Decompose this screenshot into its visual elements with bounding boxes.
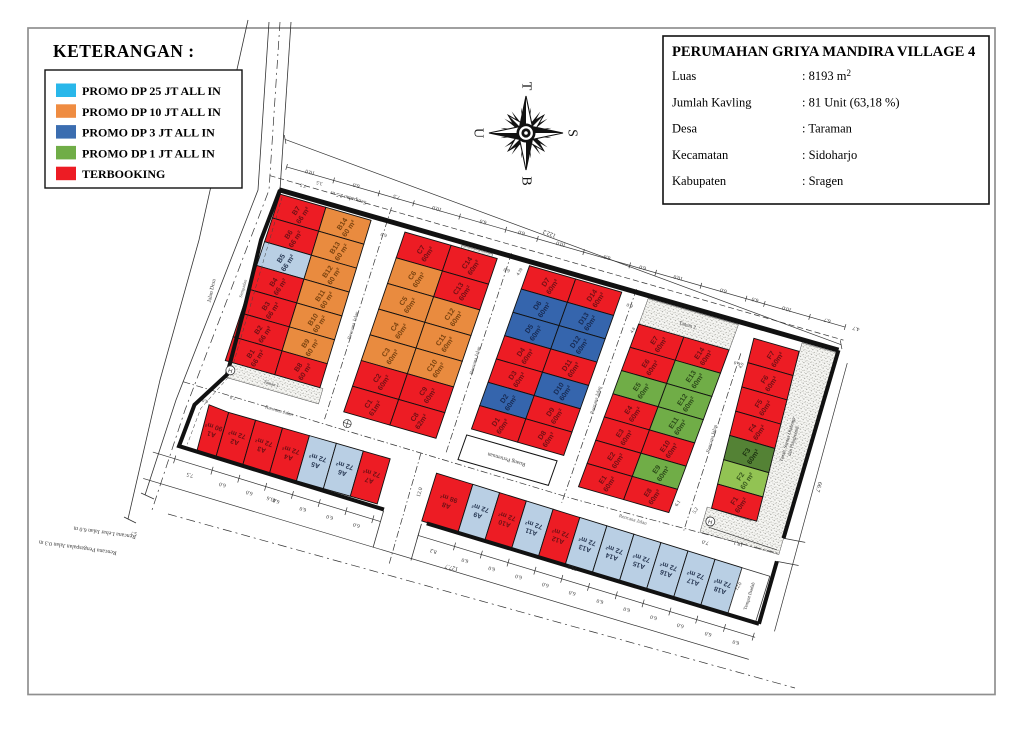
svg-text:Kabupaten: Kabupaten: [672, 174, 727, 188]
svg-text:Luas: Luas: [672, 69, 696, 83]
svg-text:S: S: [565, 129, 580, 137]
svg-text:Jumlah Kavling: Jumlah Kavling: [672, 95, 752, 109]
svg-text:5.7: 5.7: [130, 530, 137, 536]
svg-text:: 81 Unit (63,18 %): : 81 Unit (63,18 %): [802, 95, 900, 109]
svg-text:PROMO DP 3 JT ALL IN: PROMO DP 3 JT ALL IN: [82, 126, 215, 140]
svg-text:KETERANGAN :: KETERANGAN :: [53, 41, 195, 61]
svg-text:PROMO DP 25 JT ALL IN: PROMO DP 25 JT ALL IN: [82, 84, 221, 98]
svg-text:PROMO DP 1 JT ALL IN: PROMO DP 1 JT ALL IN: [82, 146, 215, 160]
svg-text:PERUMAHAN GRIYA MANDIRA VILLAG: PERUMAHAN GRIYA MANDIRA VILLAGE 4: [672, 44, 976, 60]
svg-text:: Sidoharjo: : Sidoharjo: [802, 148, 857, 162]
svg-text:TERBOOKING: TERBOOKING: [82, 167, 165, 181]
svg-text:U: U: [471, 128, 486, 138]
svg-text:Kecamatan: Kecamatan: [672, 148, 729, 162]
svg-text:B: B: [519, 176, 534, 185]
svg-text:Desa: Desa: [672, 122, 697, 136]
svg-text:: 8193 m2: : 8193 m2: [802, 68, 851, 83]
svg-text:: Taraman: : Taraman: [802, 122, 853, 136]
svg-text:T: T: [519, 82, 534, 91]
svg-text:: Sragen: : Sragen: [802, 174, 844, 188]
svg-text:PROMO DP 10 JT ALL IN: PROMO DP 10 JT ALL IN: [82, 105, 221, 119]
